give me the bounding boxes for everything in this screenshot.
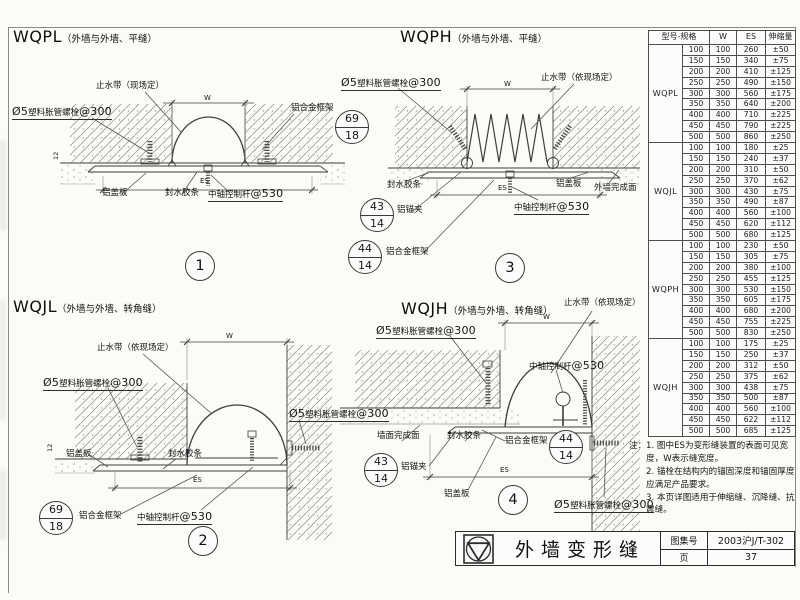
spec-cell: 560 [737,404,766,415]
spec-cell: 300 [710,186,737,197]
spec-cell: 350 [683,393,710,404]
bolt-spacing: @300 [110,376,143,389]
ref-page-number: 18 [40,519,72,535]
bolt-text: 塑料胀管螺栓 [570,501,621,511]
spec-cell: 250 [683,273,710,284]
spec-cell: 640 [737,99,766,110]
bolt-text: 塑料胀管螺栓 [28,108,79,118]
spec-cell: ±125 [766,230,796,241]
spec-cell: 500 [737,393,766,404]
spec-cell: 312 [737,360,766,371]
detail-2-subtitle: （外墙与外墙、转角缝） [57,304,162,315]
label-seal-d4: 封水胶条 [447,432,481,441]
rod-spacing: @530 [572,359,605,372]
spec-cell: ±37 [766,153,796,164]
spec-cell: ±87 [766,393,796,404]
spec-cell: ±87 [766,197,796,208]
bolt-spacing: @300 [443,324,476,337]
detail-3-title: WQPH（外墙与外墙、平缝） [400,27,547,46]
spec-cell: 200 [710,262,737,273]
spec-cell: 200 [683,66,710,77]
ref-detail-number: 44 [349,241,381,258]
spec-cell: 150 [710,349,737,360]
page-number: 37 [708,549,795,565]
spec-cell: ±250 [766,328,796,339]
spec-cell: 500 [710,328,737,339]
spec-cell: 438 [737,382,766,393]
spec-cell: 100 [710,143,737,154]
ref-page-number: 14 [361,216,393,232]
label-rod-d3: 中轴控制杆@530 [514,201,589,215]
bolt-prefix: Ø5 [43,376,59,389]
spec-cell: 680 [737,230,766,241]
spec-cell: 250 [737,349,766,360]
spec-cell: ±25 [766,339,796,350]
spec-cell: 620 [737,219,766,230]
detail-1-number: 1 [185,251,215,281]
model-cell: WQJL [649,143,683,241]
spec-cell: 400 [683,404,710,415]
spec-cell: 450 [710,121,737,132]
detail-1-subtitle: （外墙与外墙、平缝） [62,34,157,45]
spec-cell: ±225 [766,121,796,132]
atlas-row: 图集号2003沪J/T-302 [661,532,795,550]
sheet-title: 外墙变形缝 [494,535,660,562]
spec-cell: 450 [683,121,710,132]
label-waterstop-d1: 止水带（现场定） [96,82,164,91]
label-frame-d2: 铝合金框架 [79,512,122,521]
label-frame-d4: 铝合金框架 [505,437,548,446]
spec-cell: 150 [710,251,737,262]
spec-cell: ±225 [766,317,796,328]
spec-cell: 380 [737,262,766,273]
ref-page-number: 18 [336,128,368,144]
spec-cell: 350 [710,295,737,306]
spec-cell: 400 [710,404,737,415]
spec-cell: 350 [683,99,710,110]
col-model-spec: 型号-规格 [649,31,710,45]
spec-cell: 490 [737,77,766,88]
spec-cell: ±75 [766,55,796,66]
bolt-prefix: Ø5 [12,105,28,118]
label-rod-d1: 中轴控制杆@530 [208,188,283,202]
rod-text: 中轴控制杆 [514,203,557,213]
dim-es-d3: ES [498,184,507,192]
ref-detail-number: 43 [361,199,393,216]
label-frame-d1: 铝合金框架 [291,104,334,113]
spec-cell: 430 [737,186,766,197]
label-wall-face-finish-d4: 墙面完成面 [377,432,420,441]
spec-cell: 400 [683,110,710,121]
ref-detail-number: 43 [365,454,397,471]
spec-cell: ±50 [766,241,796,252]
spec-cell: 150 [683,349,710,360]
spec-cell: 260 [737,45,766,56]
spec-cell: ±200 [766,306,796,317]
spec-cell: 150 [683,55,710,66]
spec-cell: 350 [710,99,737,110]
notes-block: 注：1. 图中ES为变形缝装置的表面可见宽度，W表示缝宽度。 2. 锚栓在结构内… [629,440,798,517]
detail-4-code: WQJH [401,299,448,318]
ref-page-number: 14 [349,258,381,274]
spec-row: WQPH100100230±50 [649,241,796,252]
spec-cell: 400 [710,110,737,121]
label-seal-d2: 封水胶条 [168,450,202,459]
note-1: 1. 图中ES为变形缝装置的表面可见宽度，W表示缝宽度。 [646,440,798,466]
label-cover-d2: 铝盖板 [66,450,92,459]
spec-cell: 450 [710,219,737,230]
label-bolt-top-d4: Ø5塑料胀管螺栓@300 [376,325,476,339]
spec-cell: ±50 [766,164,796,175]
label-waterstop-d3: 止水带（依现场定） [541,74,618,83]
model-cell: WQJH [649,339,683,437]
spec-cell: 300 [683,88,710,99]
dim-12-d1: 12 [52,152,60,160]
spec-cell: ±100 [766,208,796,219]
spec-cell: 450 [683,415,710,426]
dim-w-d3: W [504,80,511,88]
spec-cell: 450 [683,219,710,230]
bolt-text: 塑料胀管螺栓 [59,379,110,389]
spec-cell: 500 [683,426,710,437]
spec-cell: 200 [710,66,737,77]
spec-cell: 500 [683,132,710,143]
model-cell: WQPL [649,45,683,143]
spec-cell: 250 [710,371,737,382]
spec-cell: 455 [737,273,766,284]
detail-1-code: WQPL [13,27,62,46]
model-cell: WQPH [649,241,683,339]
spec-cell: ±150 [766,77,796,88]
note-line: 2. 锚栓在结构内的锚固深度和锚固厚度应满足产品要求。 [629,466,798,492]
label-bolt-right-d2: Ø5塑料胀管螺栓@300 [289,408,389,422]
spec-cell: 400 [710,306,737,317]
spec-cell: 100 [710,45,737,56]
spec-cell: 200 [710,164,737,175]
label-bolt-d2: Ø5塑料胀管螺栓@300 [43,377,143,391]
spec-cell: 100 [683,143,710,154]
detail-1-title: WQPL（外墙与外墙、平缝） [13,27,157,46]
ref-detail-number: 69 [40,502,72,519]
spec-cell: ±100 [766,262,796,273]
spec-cell: ±75 [766,251,796,262]
spec-cell: ±250 [766,132,796,143]
bolt-spacing: @300 [408,76,441,89]
spec-cell: 100 [683,339,710,350]
spec-cell: 622 [737,415,766,426]
spec-header-row: 型号-规格 W ES 伸缩量 [649,31,796,45]
bolt-spacing: @300 [79,105,112,118]
spec-cell: ±75 [766,382,796,393]
spec-cell: 250 [683,371,710,382]
spec-cell: 605 [737,295,766,306]
spec-cell: 300 [710,382,737,393]
spec-row: WQJL100100180±25 [649,143,796,154]
spec-cell: 250 [683,77,710,88]
dim-w-d2: W [226,332,233,340]
spec-cell: 790 [737,121,766,132]
detail-3-subtitle: （外墙与外墙、平缝） [452,34,547,45]
spec-cell: 400 [683,306,710,317]
dim-12-d2: 12 [46,444,54,452]
bolt-prefix: Ø5 [554,498,570,511]
spec-cell: 250 [710,175,737,186]
spec-cell: ±225 [766,110,796,121]
spec-cell: 340 [737,55,766,66]
spec-cell: ±150 [766,284,796,295]
spec-cell: 200 [710,360,737,371]
publisher-logo-icon [463,534,494,564]
label-frame-d3: 铝合金框架 [386,248,429,257]
ref-bubble-69-18-d1: 6918 [335,110,369,144]
detail-4-subtitle: （外墙与外墙、转角缝） [448,306,553,317]
spec-cell: 100 [710,241,737,252]
dim-w-d4: W [543,313,550,321]
label-seal-d3: 封水胶条 [387,181,421,190]
ref-bubble-43-14-d4: 4314 [364,453,398,487]
spec-cell: 400 [683,208,710,219]
bolt-prefix: Ø5 [376,324,392,337]
spec-cell: ±62 [766,371,796,382]
label-waterstop-d4: 止水带（依现场定） [564,299,641,308]
bolt-text: 塑料胀管螺栓 [305,410,356,420]
spec-cell: 370 [737,175,766,186]
spec-cell: ±37 [766,349,796,360]
spec-cell: 685 [737,426,766,437]
label-bolt-d1: Ø5塑料胀管螺栓@300 [12,106,112,120]
detail-3-code: WQPH [400,27,452,46]
spec-cell: 175 [737,339,766,350]
spec-cell: 350 [710,197,737,208]
page-label: 页 [661,549,708,565]
label-cover-d4: 铝盖板 [444,490,470,499]
label-waterstop-d2: 止水带（依现场定） [97,344,174,353]
spec-cell: 150 [683,251,710,262]
note-line: 3. 本页详图适用于伸缩缝、沉降缝、抗震缝。 [629,492,798,518]
ref-bubble-44-14-d4: 4414 [549,430,583,464]
ref-bubble-43-14-d3: 4314 [360,198,394,232]
spec-cell: 100 [683,241,710,252]
col-es: ES [737,31,766,45]
spec-cell: ±125 [766,273,796,284]
ref-detail-number: 44 [550,431,582,448]
label-rod-d4: 中轴控制杆@530 [529,360,604,372]
spec-table-body: WQPL100100260±50150150340±75200200410±12… [649,45,796,437]
rod-spacing: @530 [557,200,590,213]
bolt-prefix: Ø5 [341,76,357,89]
detail-2-title: WQJL（外墙与外墙、转角缝） [13,297,162,316]
spec-cell: 200 [683,262,710,273]
rod-text: 中轴控制杆 [137,513,180,523]
spec-cell: 250 [710,273,737,284]
detail-4-title: WQJH（外墙与外墙、转角缝） [401,299,553,318]
label-clamp-d4: 铝锚夹 [401,463,427,472]
atlas-label: 图集号 [661,532,708,550]
spec-cell: 200 [683,164,710,175]
spec-cell: 300 [683,186,710,197]
spec-cell: 500 [710,426,737,437]
ref-bubble-69-18-d2: 6918 [39,501,73,535]
label-wall-finish-d3: 外墙完成面 [594,184,637,193]
spec-cell: ±175 [766,295,796,306]
atlas-number: 2003沪J/T-302 [708,532,795,550]
spec-cell: 250 [683,175,710,186]
spec-cell: 755 [737,317,766,328]
spec-cell: 860 [737,132,766,143]
spec-cell: ±125 [766,66,796,77]
detail-3-number: 3 [495,253,525,283]
bolt-text: 塑料胀管螺栓 [392,327,443,337]
spec-cell: 710 [737,110,766,121]
dim-es-d4: ES [500,466,509,474]
spec-cell: ±75 [766,186,796,197]
dim-es-d1: ES [200,177,209,185]
spec-cell: 310 [737,164,766,175]
dim-es-d2: ES [193,476,202,484]
spec-cell: 350 [710,393,737,404]
spec-cell: ±100 [766,404,796,415]
bolt-text: 塑料胀管螺栓 [357,79,408,89]
spec-cell: 500 [683,230,710,241]
spec-cell: 180 [737,143,766,154]
label-seal-d1: 封水胶条 [165,189,199,198]
spec-cell: 350 [683,295,710,306]
note-line: 注：1. 图中ES为变形缝装置的表面可见宽度，W表示缝宽度。 [629,440,798,466]
detail-4-number: 4 [498,485,528,515]
spec-cell: 240 [737,153,766,164]
spec-row: WQPL100100260±50 [649,45,796,56]
spec-cell: 300 [710,284,737,295]
spec-cell: ±62 [766,175,796,186]
ref-bubble-44-14-d3: 4414 [348,240,382,274]
detail-2-number: 2 [188,526,218,556]
note-2: 2. 锚栓在结构内的锚固深度和锚固厚度应满足产品要求。 [646,466,798,492]
spec-cell: 300 [683,284,710,295]
spec-cell: 500 [683,328,710,339]
label-cover-d1: 铝盖板 [102,189,128,198]
spec-cell: 450 [710,415,737,426]
spec-cell: 150 [710,55,737,66]
rod-spacing: @530 [180,510,213,523]
spec-cell: ±125 [766,426,796,437]
label-rod-d2: 中轴控制杆@530 [137,511,212,525]
spec-table: 型号-规格 W ES 伸缩量 WQPL100100260±50150150340… [648,30,796,437]
spec-cell: 200 [683,360,710,371]
label-cover-d3: 铝盖板 [556,180,582,189]
page-row: 页37 [661,549,795,565]
note-indent [629,492,646,518]
rod-text: 中轴控制杆 [208,190,251,200]
spec-cell: 300 [710,88,737,99]
spec-cell: 375 [737,371,766,382]
spec-cell: 530 [737,284,766,295]
spec-cell: ±112 [766,415,796,426]
spec-cell: 350 [683,197,710,208]
ref-detail-number: 69 [336,111,368,128]
spec-cell: 450 [710,317,737,328]
spec-cell: ±50 [766,45,796,56]
spec-cell: ±50 [766,360,796,371]
rod-spacing: @530 [251,187,284,200]
spec-cell: ±25 [766,143,796,154]
spec-cell: 500 [710,230,737,241]
spec-cell: 560 [737,88,766,99]
spec-cell: 100 [683,45,710,56]
spec-cell: ±112 [766,219,796,230]
spec-cell: 560 [737,208,766,219]
rod-text: 中轴控制杆 [529,362,572,372]
ref-page-number: 14 [365,471,397,487]
note-3: 3. 本页详图适用于伸缩缝、沉降缝、抗震缝。 [646,492,798,518]
spec-cell: 410 [737,66,766,77]
spec-cell: 830 [737,328,766,339]
title-bar: 外墙变形缝 图集号2003沪J/T-302 页37 [455,531,795,566]
spec-cell: 500 [710,132,737,143]
spec-cell: 400 [710,208,737,219]
ref-page-number: 14 [550,448,582,464]
sheet: WQPL（外墙与外墙、平缝） WQPH（外墙与外墙、平缝） WQJL（外墙与外墙… [0,0,800,600]
note-indent [629,466,646,492]
spec-cell: 490 [737,197,766,208]
spec-row: WQJH100100175±25 [649,339,796,350]
atlas-block: 图集号2003沪J/T-302 页37 [660,531,795,566]
label-bolt-d3: Ø5塑料胀管螺栓@300 [341,77,441,91]
spec-cell: 100 [710,339,737,350]
spec-cell: 250 [710,77,737,88]
spec-cell: 300 [683,382,710,393]
note-prefix: 注： [629,440,646,466]
spec-cell: 150 [683,153,710,164]
spec-cell: ±175 [766,88,796,99]
bolt-spacing: @300 [356,407,389,420]
label-clamp-d3: 铝锚夹 [397,206,423,215]
spec-cell: 305 [737,251,766,262]
detail-3-linework [388,84,640,252]
dim-w-d1: W [204,94,211,102]
spec-cell: 680 [737,306,766,317]
spec-cell: ±200 [766,99,796,110]
spec-cell: 230 [737,241,766,252]
bolt-prefix: Ø5 [289,407,305,420]
spec-cell: 450 [683,317,710,328]
col-expansion: 伸缩量 [766,31,796,45]
col-w: W [710,31,737,45]
detail-2-code: WQJL [13,297,57,316]
spec-cell: 150 [710,153,737,164]
